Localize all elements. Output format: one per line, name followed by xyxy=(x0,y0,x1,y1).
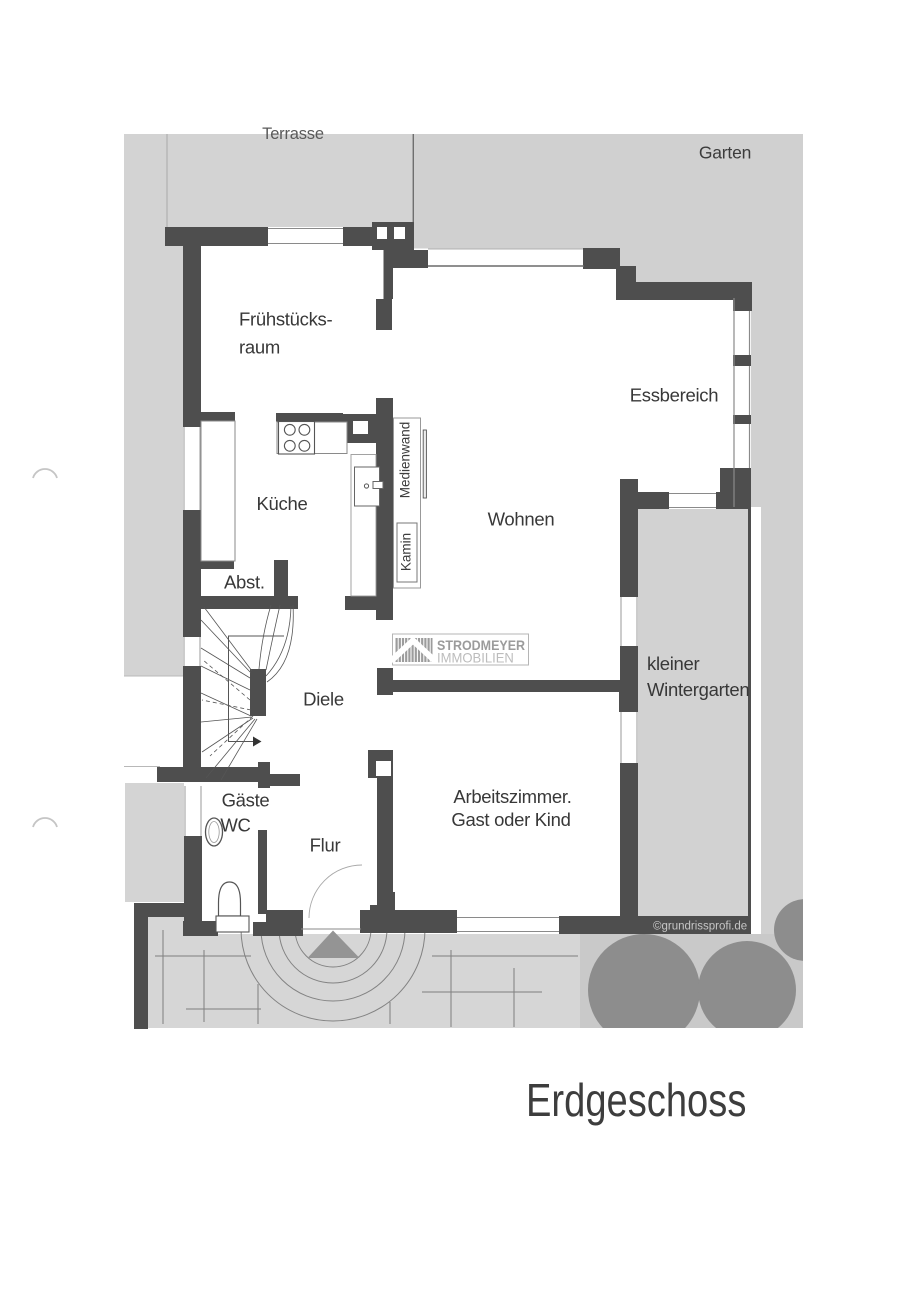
svg-text:Flur: Flur xyxy=(310,835,341,856)
svg-text:IMMOBILIEN: IMMOBILIEN xyxy=(437,650,514,666)
svg-text:Gäste: Gäste xyxy=(222,790,270,811)
svg-text:Küche: Küche xyxy=(257,493,308,514)
svg-text:Diele: Diele xyxy=(303,689,344,710)
svg-text:©grundrissprofi.de: ©grundrissprofi.de xyxy=(653,921,747,933)
svg-text:Essbereich: Essbereich xyxy=(630,385,719,406)
svg-text:Garten: Garten xyxy=(699,143,751,163)
svg-text:Medienwand: Medienwand xyxy=(398,422,413,499)
svg-text:kleiner: kleiner xyxy=(647,653,700,674)
svg-text:Wintergarten: Wintergarten xyxy=(647,679,749,700)
svg-text:Abst.: Abst. xyxy=(224,572,265,593)
svg-text:Gast oder Kind: Gast oder Kind xyxy=(451,809,570,830)
svg-text:Frühstücks-: Frühstücks- xyxy=(239,309,332,330)
svg-text:Kamin: Kamin xyxy=(399,533,414,571)
svg-text:raum: raum xyxy=(239,337,280,358)
svg-text:Erdgeschoss: Erdgeschoss xyxy=(526,1076,746,1127)
svg-text:WC: WC xyxy=(220,815,250,836)
svg-text:Arbeitszimmer.: Arbeitszimmer. xyxy=(453,786,571,807)
svg-text:Wohnen: Wohnen xyxy=(488,509,555,530)
